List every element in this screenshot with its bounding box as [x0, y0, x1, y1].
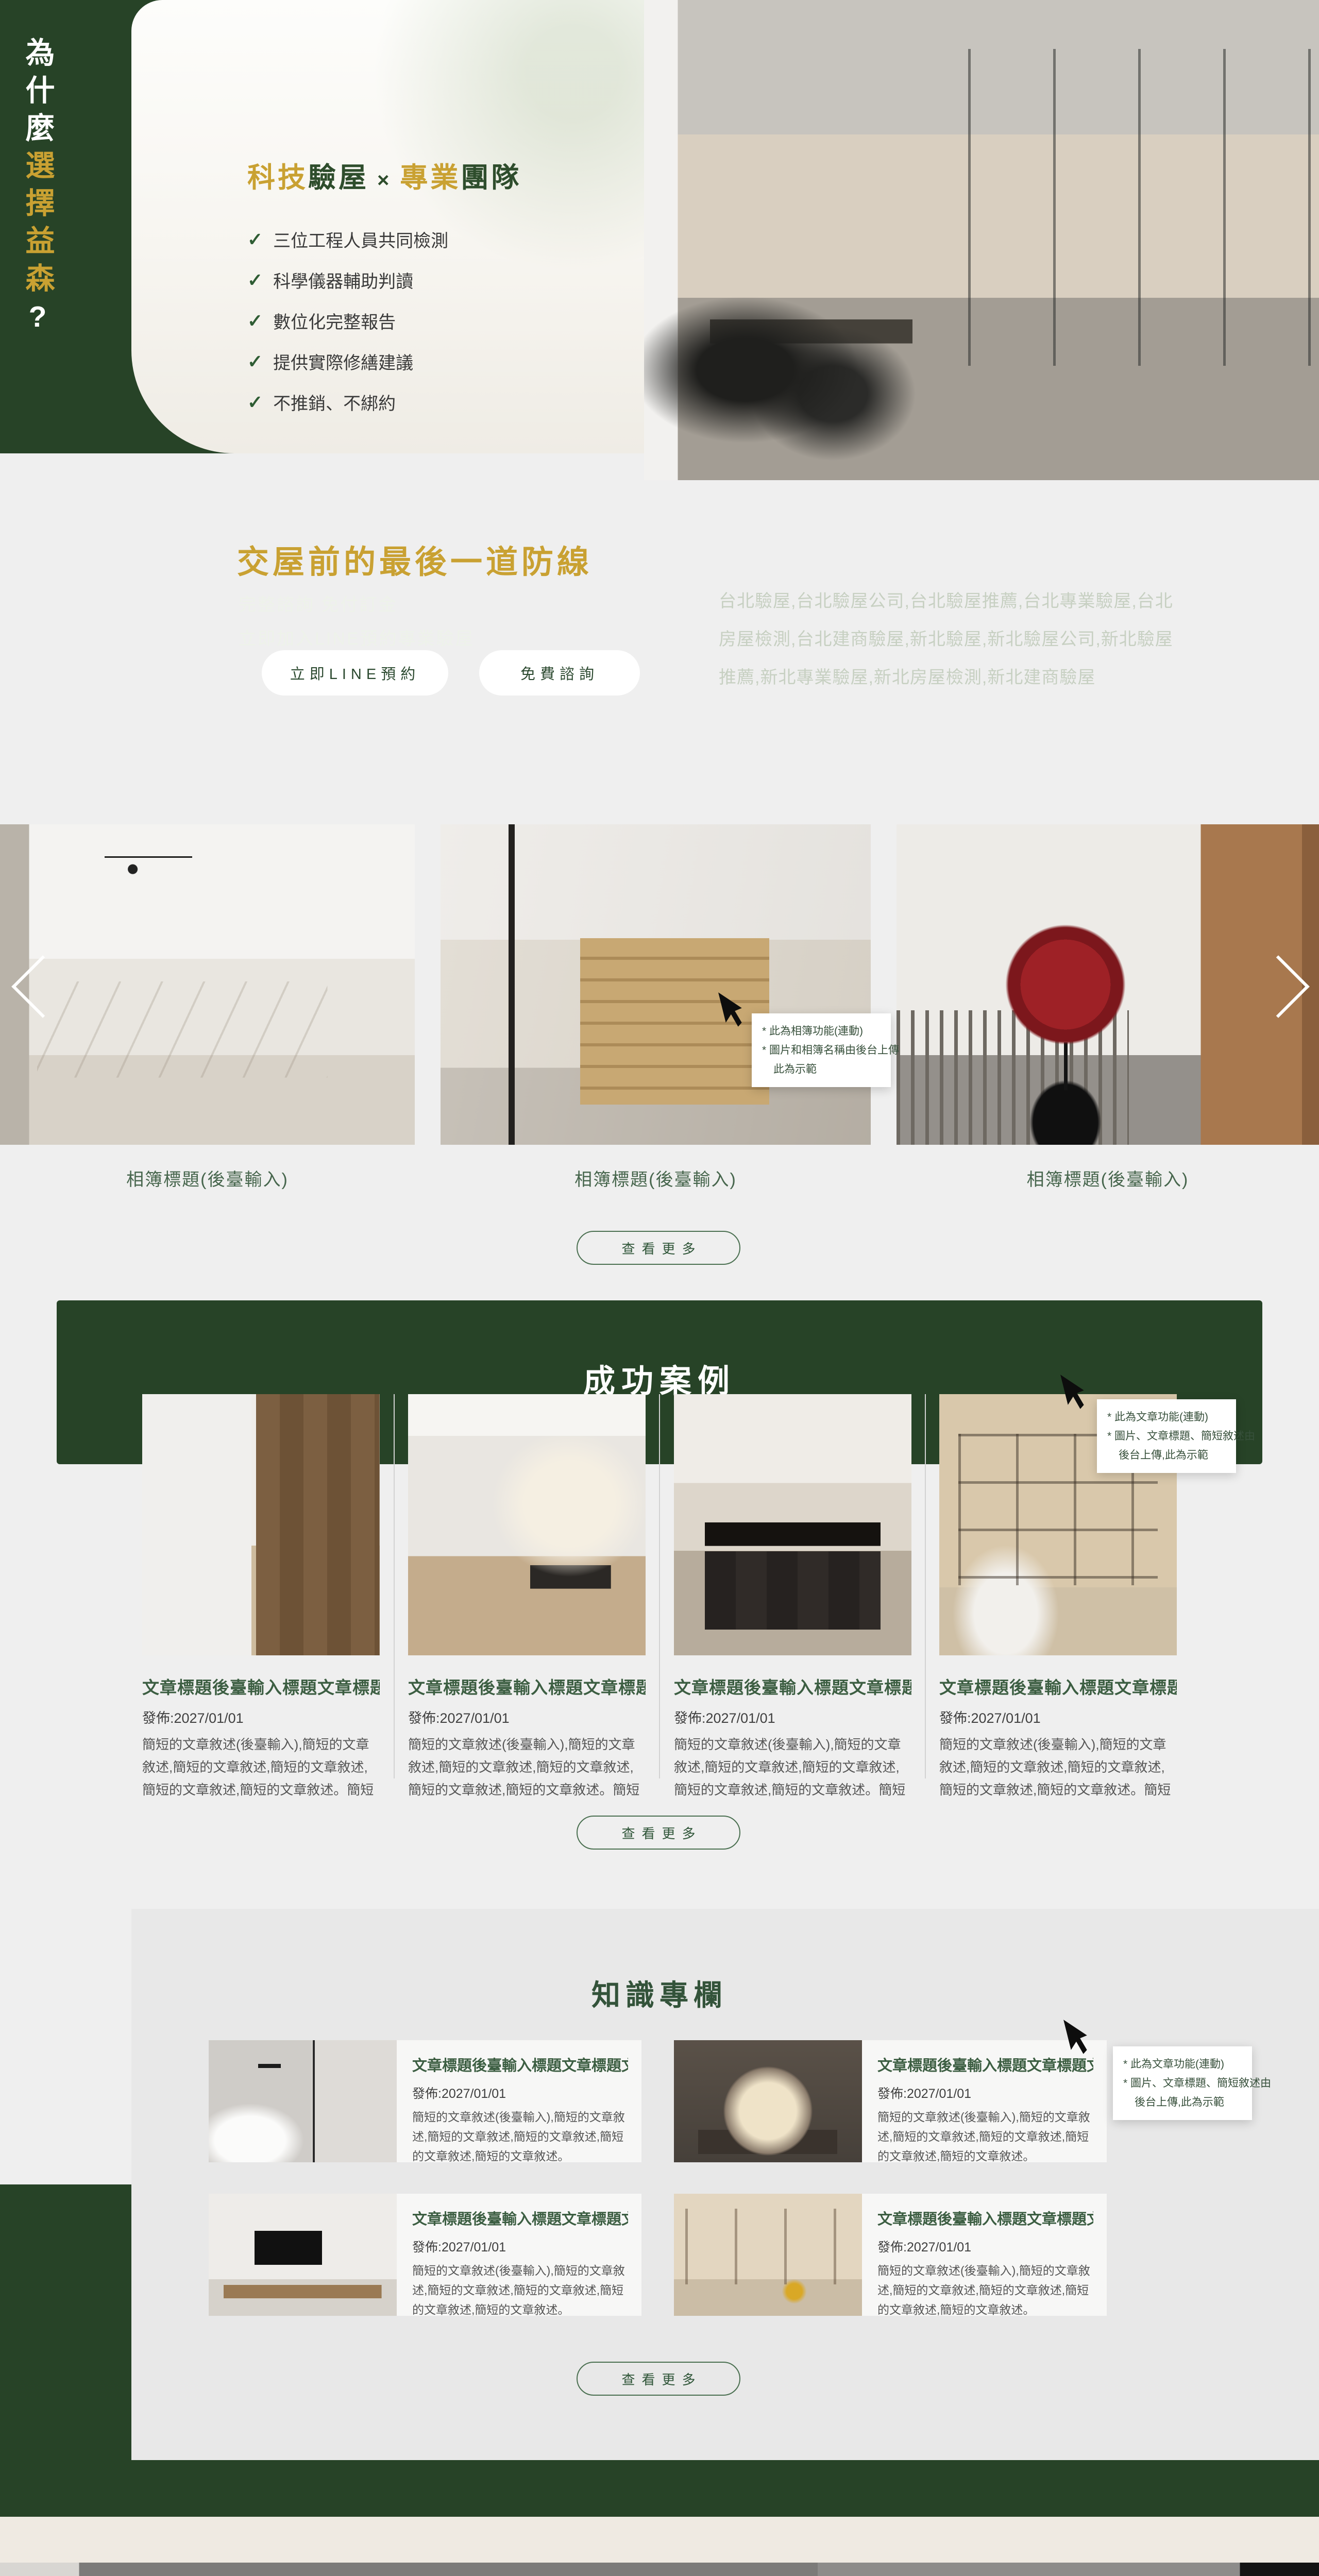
free-consult-button[interactable]: 免費諮詢 — [479, 650, 640, 696]
cta-seo-keywords: 台北驗屋,台北驗屋公司,台北驗屋推薦,台北專業驗屋,台北房屋檢測,台北建商驗屋,… — [719, 582, 1188, 697]
success-card-title: 文章標題後臺輸入標題文章標題標題... — [674, 1674, 911, 1699]
album-caption: 相簿標題(後臺輸入) — [441, 1165, 871, 1191]
hero-office-photo — [644, 0, 1319, 480]
success-tooltip: * 此為文章功能(連動) * 圖片、文章標題、簡短敘述由 後台上傳,此為示範 — [1097, 1399, 1236, 1473]
check-icon: ✓ — [247, 351, 263, 372]
checklist-text: 提供實際修繕建議 — [273, 349, 413, 374]
footer-livingroom-photo — [0, 2517, 1319, 2576]
hero-title-team: 團隊 — [461, 162, 521, 193]
green-bottom-band — [0, 2460, 1319, 2518]
hero-vertical-tagline: 為什麼選擇益森? — [23, 37, 52, 342]
card-divider — [659, 1394, 660, 1778]
success-card-image — [142, 1394, 380, 1655]
knowledge-card-desc: 簡短的文章敘述(後臺輸入),簡短的文章敘述,簡短的文章敘述,簡短的文章敘述,簡短… — [877, 2261, 1093, 2316]
success-card-title: 文章標題後臺輸入標題文章標題標題... — [408, 1674, 646, 1699]
knowledge-card-date: 發佈:2027/01/01 — [877, 2083, 1093, 2102]
tooltip-line: * 此為文章功能(連動) — [1107, 1408, 1226, 1427]
knowledge-card-image — [209, 2040, 397, 2162]
checklist-text: 不推銷、不綁約 — [273, 389, 396, 415]
success-card-image — [408, 1394, 646, 1655]
knowledge-card-desc: 簡短的文章敘述(後臺輸入),簡短的文章敘述,簡短的文章敘述,簡短的文章敘述,簡短… — [412, 2107, 628, 2162]
success-card-date: 發佈:2027/01/01 — [674, 1707, 911, 1727]
knowledge-card-body: 文章標題後臺輸入標題文章標題文章... 發佈:2027/01/01 簡短的文章敘… — [397, 2194, 641, 2316]
knowledge-card-title: 文章標題後臺輸入標題文章標題文章... — [877, 2054, 1093, 2075]
knowledge-more-button[interactable]: 查看更多 — [577, 2362, 740, 2396]
knowledge-card-image — [674, 2194, 862, 2316]
hero-title-pro: 專業 — [400, 162, 461, 193]
knowledge-card[interactable]: 文章標題後臺輸入標題文章標題文章... 發佈:2027/01/01 簡短的文章敘… — [674, 2194, 1107, 2316]
knowledge-card-title: 文章標題後臺輸入標題文章標題文章... — [412, 2207, 628, 2229]
knowledge-card-title: 文章標題後臺輸入標題文章標題文章... — [877, 2207, 1093, 2229]
hero-title-inspect: 驗屋 — [308, 162, 369, 193]
check-icon: ✓ — [247, 229, 263, 250]
success-card-image — [674, 1394, 911, 1655]
knowledge-card-image — [674, 2040, 862, 2162]
success-card-date: 發佈:2027/01/01 — [939, 1707, 1177, 1727]
tooltip-line: * 此為相簿功能(連動) — [762, 1022, 881, 1041]
tooltip-line: * 此為文章功能(連動) — [1123, 2055, 1242, 2074]
check-icon: ✓ — [247, 269, 263, 291]
album-caption: 相簿標題(後臺輸入) — [0, 1165, 415, 1191]
tooltip-line: 此為示範 — [762, 1060, 881, 1079]
checklist-text: 科學儀器輔助判讀 — [273, 267, 413, 293]
success-card-desc: 簡短的文章敘述(後臺輸入),簡短的文章敘述,簡短的文章敘述,簡短的文章敘述,簡短… — [674, 1733, 911, 1801]
checklist-item: ✓不推銷、不綁約 — [247, 389, 448, 415]
success-card-desc: 簡短的文章敘述(後臺輸入),簡短的文章敘述,簡短的文章敘述,簡短的文章敘述,簡短… — [142, 1733, 380, 1801]
success-card[interactable]: 文章標題後臺輸入標題文章標題標題... 發佈:2027/01/01 簡短的文章敘… — [408, 1394, 646, 1801]
success-card-date: 發佈:2027/01/01 — [142, 1707, 380, 1727]
hero-title: 科技驗屋×專業團隊 — [247, 155, 521, 195]
hero-checklist: ✓三位工程人員共同檢測 ✓科學儀器輔助判讀 ✓數位化完整報告 ✓提供實際修繕建議… — [247, 227, 448, 430]
check-icon: ✓ — [247, 392, 263, 413]
cta-subtitle-2: 立即加入LINE預約專業驗屋 — [239, 624, 475, 650]
knowledge-card-title: 文章標題後臺輸入標題文章標題文章... — [412, 2054, 628, 2075]
knowledge-card-date: 發佈:2027/01/01 — [412, 2083, 628, 2102]
tagline-part-gold: 選擇益森 — [21, 150, 54, 300]
album-photo-staircase[interactable] — [441, 824, 871, 1145]
tooltip-line: * 圖片和相簿名稱由後台上傳 — [762, 1041, 881, 1060]
tagline-question-mark: ? — [21, 300, 54, 342]
knowledge-card[interactable]: 文章標題後臺輸入標題文章標題文章... 發佈:2027/01/01 簡短的文章敘… — [209, 2194, 641, 2316]
success-card[interactable]: 文章標題後臺輸入標題文章標題標題... 發佈:2027/01/01 簡短的文章敘… — [142, 1394, 380, 1801]
knowledge-card-date: 發佈:2027/01/01 — [877, 2237, 1093, 2256]
cta-subtitle-1: 完整諮詢 免付訂金 — [239, 590, 397, 616]
album-tooltip: * 此為相簿功能(連動) * 圖片和相簿名稱由後台上傳 此為示範 — [752, 1013, 891, 1087]
knowledge-card[interactable]: 文章標題後臺輸入標題文章標題文章... 發佈:2027/01/01 簡短的文章敘… — [674, 2040, 1107, 2162]
checklist-item: ✓數位化完整報告 — [247, 308, 448, 333]
success-card-desc: 簡短的文章敘述(後臺輸入),簡短的文章敘述,簡短的文章敘述,簡短的文章敘述,簡短… — [408, 1733, 646, 1801]
knowledge-tooltip: * 此為文章功能(連動) * 圖片、文章標題、簡短敘述由 後台上傳,此為示範 — [1113, 2046, 1252, 2120]
card-divider — [925, 1394, 926, 1778]
knowledge-card-body: 文章標題後臺輸入標題文章標題文章... 發佈:2027/01/01 簡短的文章敘… — [397, 2040, 641, 2162]
album-caption: 相簿標題(後臺輸入) — [897, 1165, 1319, 1191]
checklist-item: ✓三位工程人員共同檢測 — [247, 227, 448, 252]
landing-page: 為什麼選擇益森? 科技驗屋×專業團隊 ✓三位工程人員共同檢測 ✓科學儀器輔助判讀… — [0, 0, 1319, 2576]
album-more-button[interactable]: 查看更多 — [577, 1231, 740, 1265]
knowledge-card-desc: 簡短的文章敘述(後臺輸入),簡短的文章敘述,簡短的文章敘述,簡短的文章敘述,簡短… — [412, 2261, 628, 2316]
success-card-date: 發佈:2027/01/01 — [408, 1707, 646, 1727]
card-divider — [394, 1394, 395, 1778]
success-card[interactable]: 文章標題後臺輸入標題文章標題標題... 發佈:2027/01/01 簡短的文章敘… — [674, 1394, 911, 1801]
success-card-title: 文章標題後臺輸入標題文章標題標題... — [142, 1674, 380, 1699]
tooltip-line: 後台上傳,此為示範 — [1123, 2093, 1242, 2112]
success-card-desc: 簡短的文章敘述(後臺輸入),簡短的文章敘述,簡短的文章敘述,簡短的文章敘述,簡短… — [939, 1733, 1177, 1801]
tagline-part-white: 為什麼 — [21, 37, 54, 150]
tooltip-line: 後台上傳,此為示範 — [1107, 1446, 1226, 1465]
checklist-text: 數位化完整報告 — [273, 308, 396, 333]
knowledge-section-title: 知識專欄 — [0, 1972, 1319, 2014]
success-card-title: 文章標題後臺輸入標題文章標題標題... — [939, 1674, 1177, 1699]
tooltip-line: * 圖片、文章標題、簡短敘述由 — [1107, 1427, 1226, 1446]
checklist-text: 三位工程人員共同檢測 — [273, 227, 448, 252]
cta-title: 交屋前的最後一道防線 — [237, 536, 593, 582]
knowledge-card-desc: 簡短的文章敘述(後臺輸入),簡短的文章敘述,簡短的文章敘述,簡短的文章敘述,簡短… — [877, 2107, 1093, 2162]
checklist-item: ✓科學儀器輔助判讀 — [247, 267, 448, 293]
knowledge-card-body: 文章標題後臺輸入標題文章標題文章... 發佈:2027/01/01 簡短的文章敘… — [862, 2040, 1107, 2162]
knowledge-card-image — [209, 2194, 397, 2316]
check-icon: ✓ — [247, 310, 263, 332]
knowledge-card-body: 文章標題後臺輸入標題文章標題文章... 發佈:2027/01/01 簡短的文章敘… — [862, 2194, 1107, 2316]
hero-title-tech: 科技 — [247, 162, 308, 193]
tooltip-line: * 圖片、文章標題、簡短敘述由 — [1123, 2074, 1242, 2093]
knowledge-card-date: 發佈:2027/01/01 — [412, 2237, 628, 2256]
success-more-button[interactable]: 查看更多 — [577, 1816, 740, 1850]
knowledge-card[interactable]: 文章標題後臺輸入標題文章標題文章... 發佈:2027/01/01 簡短的文章敘… — [209, 2040, 641, 2162]
hero-title-times: × — [377, 169, 392, 192]
checklist-item: ✓提供實際修繕建議 — [247, 349, 448, 374]
line-booking-button[interactable]: 立即LINE預約 — [262, 650, 448, 696]
